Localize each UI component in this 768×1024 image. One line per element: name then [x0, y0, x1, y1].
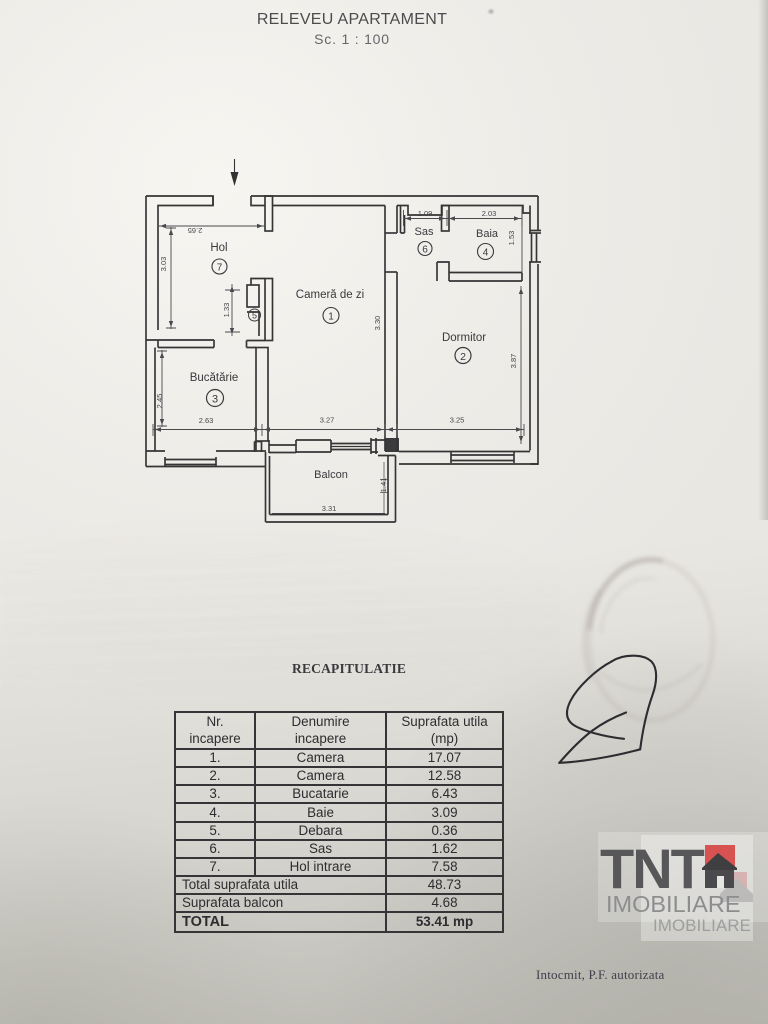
- svg-text:IMOBILIARE: IMOBILIARE: [653, 916, 751, 935]
- svg-text:3.31: 3.31: [322, 504, 337, 513]
- svg-text:1.53: 1.53: [507, 231, 516, 246]
- svg-text:3.87: 3.87: [509, 354, 518, 369]
- svg-text:IMOBILIARE: IMOBILIARE: [606, 891, 741, 917]
- svg-text:3.25: 3.25: [450, 416, 465, 425]
- svg-text:Bucătărie: Bucătărie: [190, 372, 239, 384]
- svg-text:7: 7: [217, 263, 223, 274]
- svg-text:1: 1: [328, 312, 334, 323]
- svg-text:2.65: 2.65: [188, 226, 203, 235]
- svg-text:3: 3: [212, 394, 218, 406]
- svg-text:Dormitor: Dormitor: [442, 332, 486, 344]
- svg-text:Baia: Baia: [476, 228, 499, 240]
- svg-text:4: 4: [483, 248, 489, 259]
- svg-text:3.30: 3.30: [373, 316, 382, 331]
- svg-text:Balcon: Balcon: [314, 469, 348, 481]
- svg-text:3.27: 3.27: [320, 416, 335, 425]
- svg-text:1.41: 1.41: [379, 478, 388, 493]
- svg-text:Cameră de zi: Cameră de zi: [296, 289, 364, 301]
- svg-text:1.33: 1.33: [222, 303, 231, 318]
- svg-text:3.03: 3.03: [159, 257, 168, 272]
- svg-text:6: 6: [422, 245, 428, 256]
- svg-text:2: 2: [460, 351, 466, 363]
- svg-text:2.63: 2.63: [199, 416, 214, 425]
- svg-text:Sas: Sas: [415, 226, 434, 238]
- svg-text:1.09: 1.09: [418, 209, 433, 218]
- svg-text:2.45: 2.45: [155, 394, 164, 409]
- svg-text:2.03: 2.03: [482, 209, 497, 218]
- svg-text:5: 5: [252, 311, 257, 321]
- svg-text:Hol: Hol: [210, 242, 227, 254]
